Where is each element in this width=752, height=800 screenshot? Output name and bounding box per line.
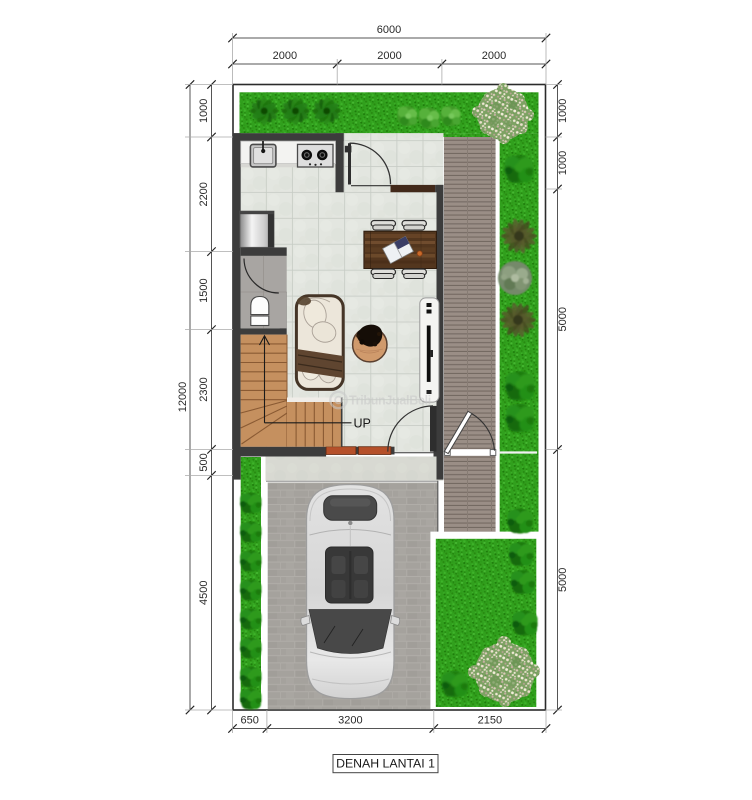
svg-text:2150: 2150	[478, 715, 502, 727]
svg-text:UP: UP	[354, 417, 371, 431]
svg-text:1000: 1000	[557, 151, 569, 175]
svg-text:650: 650	[241, 715, 259, 727]
svg-text:DENAH LANTAI 1: DENAH LANTAI 1	[336, 757, 435, 771]
svg-text:6000: 6000	[377, 24, 401, 36]
svg-text:2000: 2000	[273, 50, 297, 62]
svg-text:12000: 12000	[177, 382, 189, 413]
svg-text:5000: 5000	[557, 307, 569, 331]
svg-text:1500: 1500	[198, 278, 210, 302]
svg-text:500: 500	[198, 453, 210, 471]
svg-text:1000: 1000	[198, 99, 210, 123]
svg-text:3200: 3200	[338, 715, 362, 727]
svg-text:2200: 2200	[198, 182, 210, 206]
svg-text:1000: 1000	[557, 99, 569, 123]
svg-text:2000: 2000	[377, 50, 401, 62]
svg-text:2000: 2000	[482, 50, 506, 62]
svg-text:2300: 2300	[198, 377, 210, 401]
svg-text:5000: 5000	[557, 568, 569, 592]
svg-text:TribunJualBeli: TribunJualBeli	[349, 394, 431, 408]
svg-text:4500: 4500	[198, 580, 210, 604]
